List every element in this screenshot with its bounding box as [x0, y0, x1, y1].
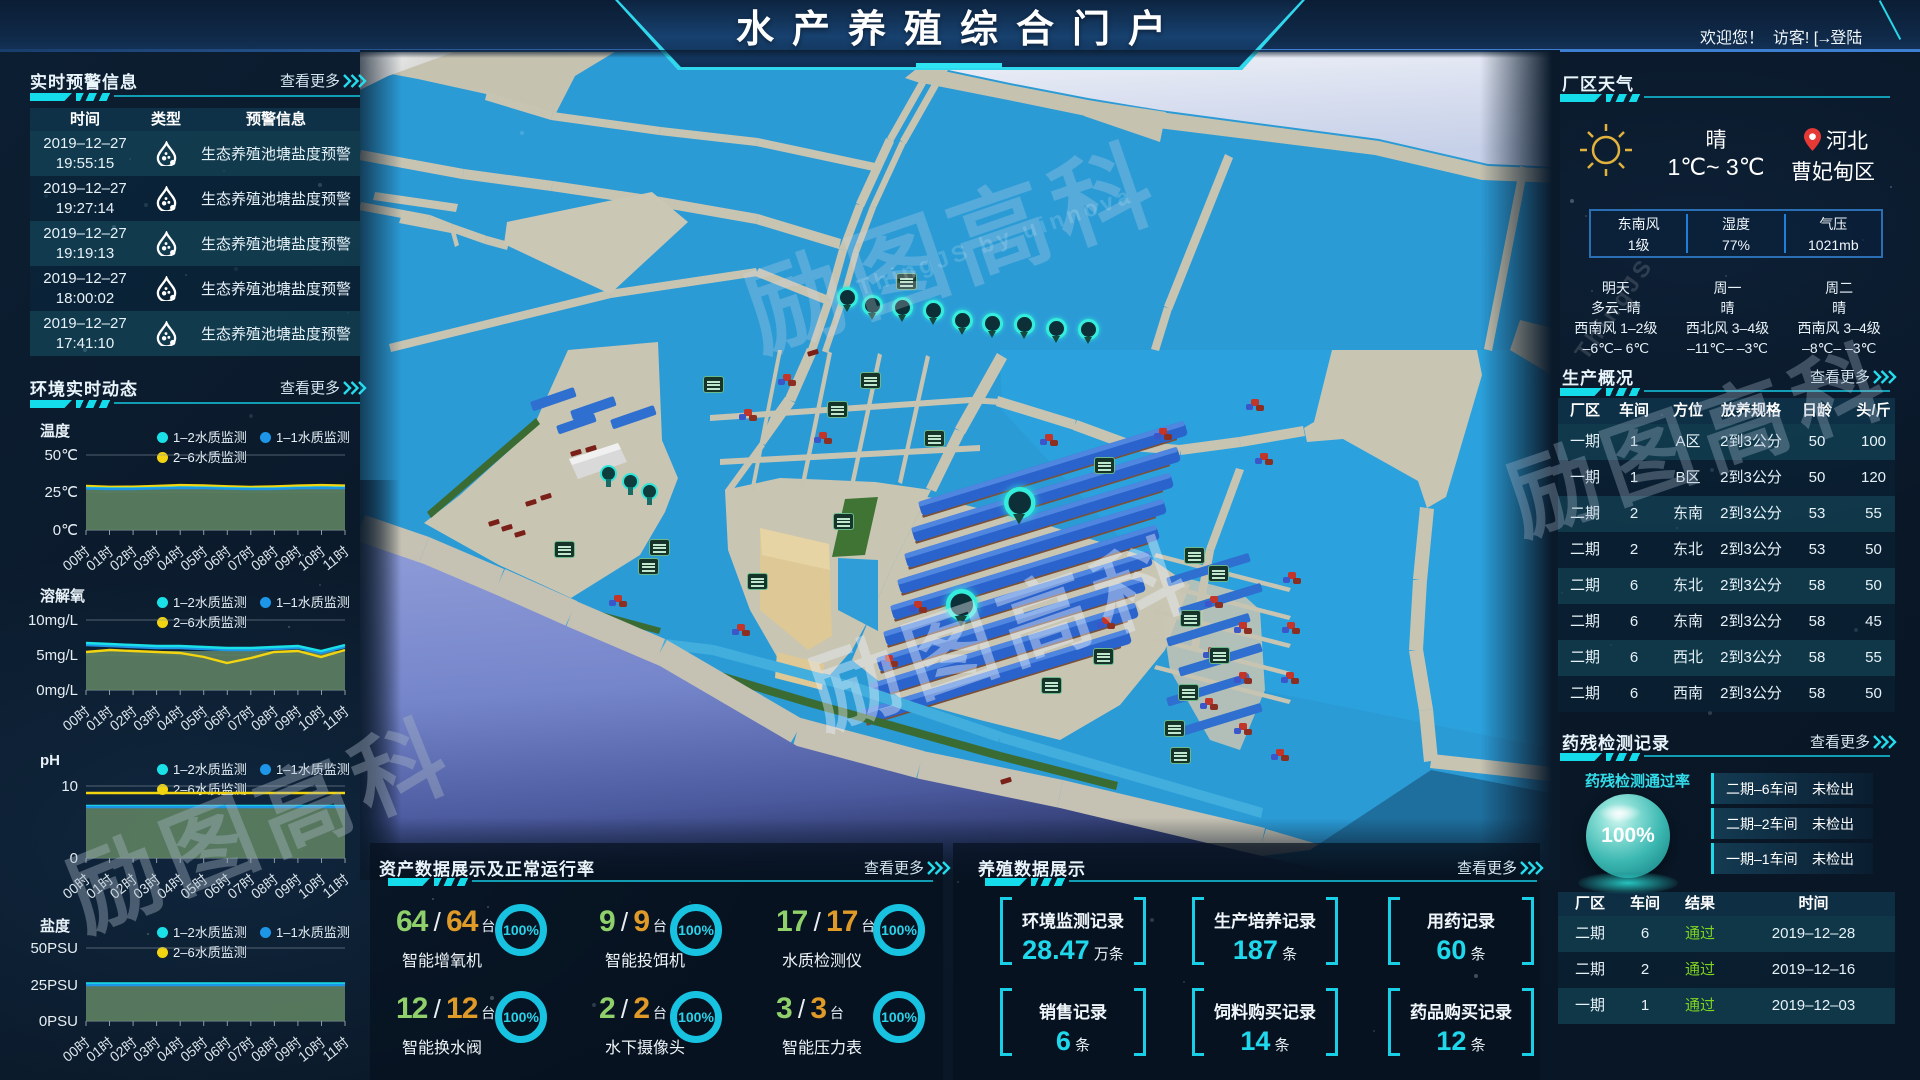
- svg-text:0℃: 0℃: [53, 522, 78, 539]
- svg-text:11时: 11时: [319, 871, 351, 901]
- svg-text:10mg/L: 10mg/L: [28, 612, 78, 629]
- svg-text:5mg/L: 5mg/L: [36, 647, 78, 664]
- svg-text:10: 10: [61, 778, 78, 795]
- svg-text:0PSU: 0PSU: [39, 1013, 78, 1030]
- svg-text:0mg/L: 0mg/L: [36, 682, 78, 699]
- svg-text:11时: 11时: [319, 543, 351, 573]
- svg-text:50℃: 50℃: [44, 447, 78, 464]
- svg-text:11时: 11时: [319, 1034, 351, 1064]
- svg-text:25PSU: 25PSU: [30, 977, 78, 994]
- svg-text:50PSU: 50PSU: [30, 940, 78, 957]
- svg-text:25℃: 25℃: [44, 484, 78, 501]
